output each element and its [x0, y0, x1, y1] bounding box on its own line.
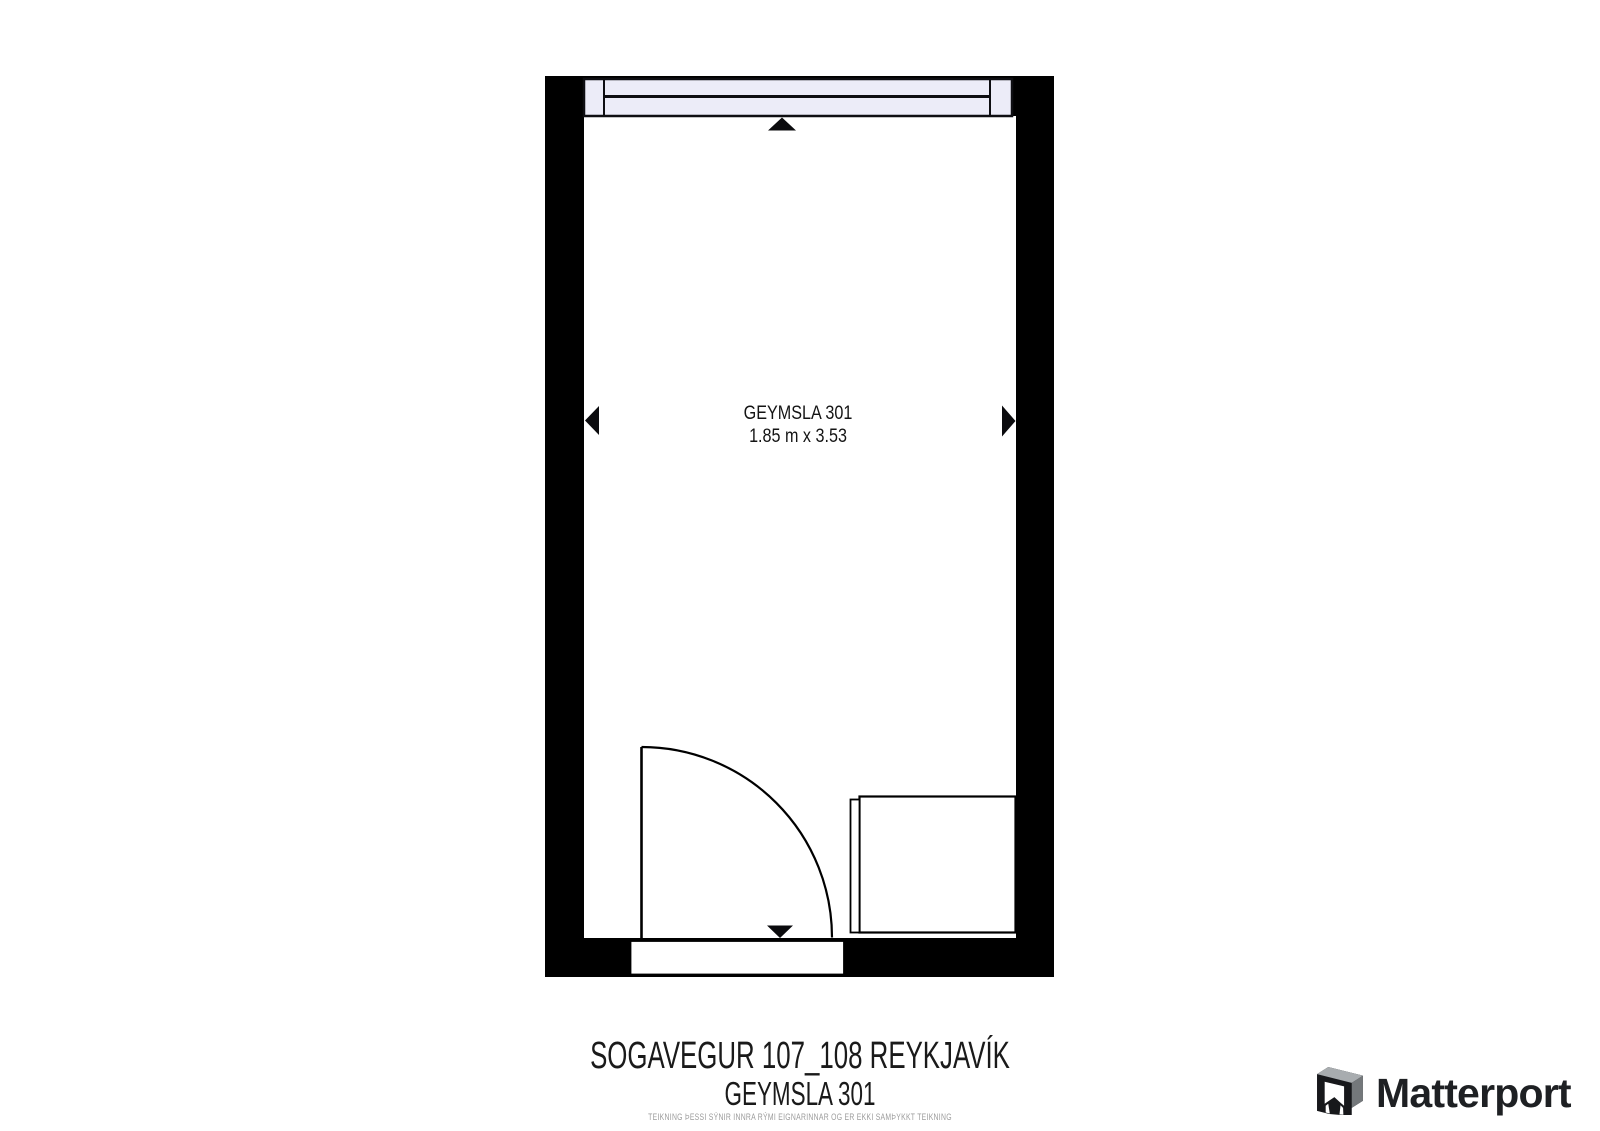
cabinet-door-panel [851, 800, 860, 933]
door-opening [631, 941, 845, 975]
window [584, 79, 1012, 116]
room-dimensions: 1.85 m x 3.53 [628, 425, 968, 448]
cabinet [851, 797, 1016, 933]
address-title: SOGAVEGUR 107_108 REYKJAVÍK [528, 1036, 1072, 1076]
room-label-block: GEYMSLA 301 1.85 m x 3.53 [628, 402, 968, 448]
cabinet-body [860, 797, 1016, 933]
disclaimer-text: TEIKNING ÞESSI SÝNIR INNRA RÝMI EIGNARIN… [512, 1112, 1088, 1124]
unit-subtitle: GEYMSLA 301 [528, 1078, 1072, 1110]
floor-plan-drawing [0, 0, 1600, 1131]
floor-plan-page: GEYMSLA 301 1.85 m x 3.53 SOGAVEGUR 107_… [0, 0, 1600, 1131]
matterport-logo-icon [1317, 1067, 1363, 1115]
matterport-brand: Matterport [1317, 1067, 1571, 1117]
room-name: GEYMSLA 301 [628, 402, 968, 425]
caption-block: SOGAVEGUR 107_108 REYKJAVÍK GEYMSLA 301 … [400, 1036, 1200, 1124]
matterport-logo-text: Matterport [1376, 1070, 1571, 1117]
